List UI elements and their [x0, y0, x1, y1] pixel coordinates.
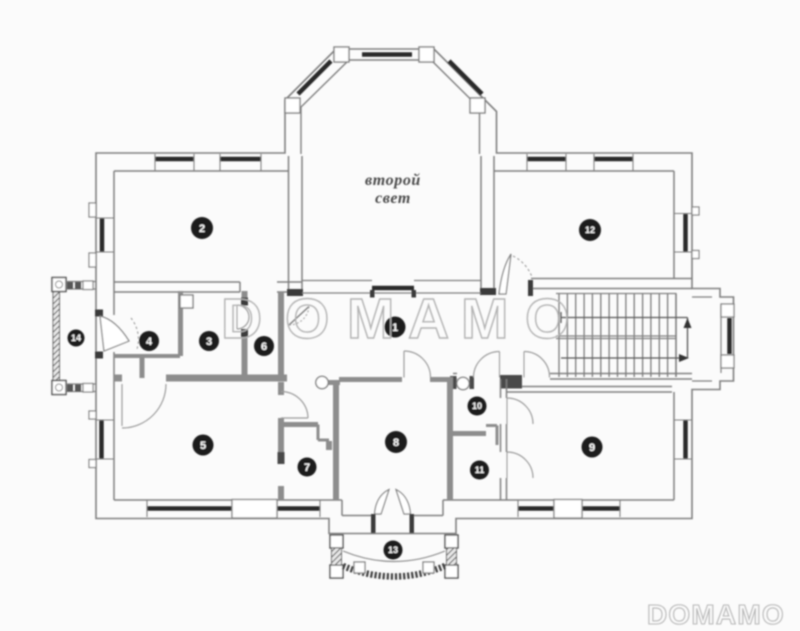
svg-text:9: 9: [589, 442, 595, 454]
svg-text:4: 4: [146, 336, 153, 348]
svg-text:10: 10: [472, 401, 482, 411]
svg-text:13: 13: [388, 545, 398, 555]
svg-text:7: 7: [304, 462, 310, 474]
svg-text:3: 3: [206, 336, 212, 348]
svg-text:14: 14: [71, 333, 81, 343]
svg-text:DOMAMO: DOMAMO: [647, 599, 785, 630]
svg-text:11: 11: [475, 465, 485, 475]
svg-text:5: 5: [200, 440, 206, 452]
svg-text:12: 12: [585, 225, 595, 235]
svg-text:8: 8: [393, 437, 399, 449]
svg-text:свет: свет: [375, 190, 411, 207]
svg-text:второй: второй: [365, 172, 421, 189]
svg-text:2: 2: [199, 223, 205, 235]
